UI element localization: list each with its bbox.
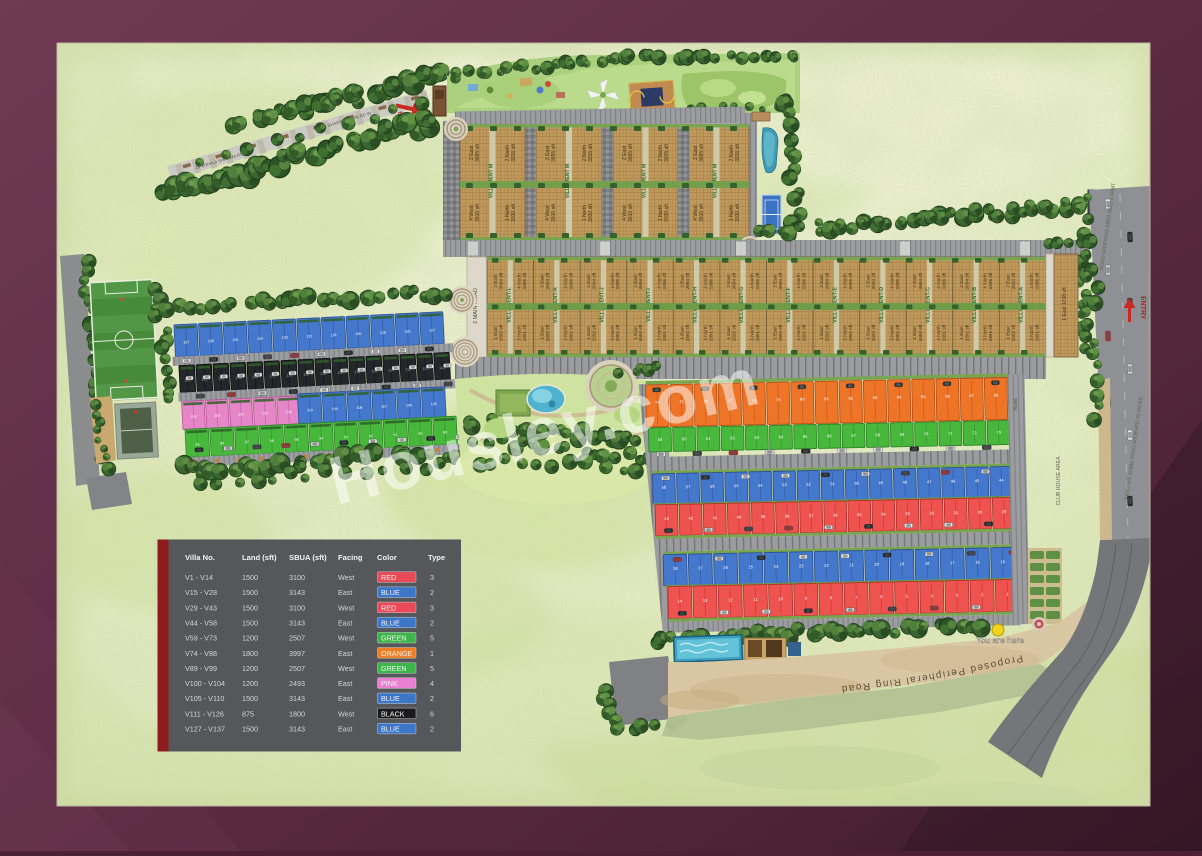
svg-text:V74 - V88: V74 - V88	[185, 649, 217, 658]
svg-text:3997: 3997	[289, 649, 305, 658]
svg-text:1200: 1200	[242, 664, 258, 673]
svg-text:3 North: 3 North	[563, 325, 568, 341]
svg-text:V111 - V126: V111 - V126	[185, 709, 224, 718]
svg-text:1500: 1500	[242, 588, 258, 597]
svg-text:3: 3	[430, 573, 434, 582]
svg-text:2 East: 2 East	[633, 274, 638, 288]
svg-text:1 East: 1 East	[633, 326, 638, 340]
svg-text:1592 sft: 1592 sft	[592, 324, 597, 341]
svg-text:2: 2	[430, 588, 434, 597]
svg-text:129: 129	[380, 331, 386, 335]
svg-text:1592 sft: 1592 sft	[1011, 324, 1016, 341]
svg-text:CLUB HOUSE AREA: CLUB HOUSE AREA	[1056, 456, 1062, 506]
svg-text:1 East: 1 East	[540, 326, 545, 340]
svg-text:Type: Type	[428, 553, 445, 562]
svg-text:4 North: 4 North	[703, 273, 708, 289]
svg-text:127: 127	[429, 328, 435, 332]
svg-text:1 East: 1 East	[819, 326, 824, 340]
svg-text:1991 sft: 1991 sft	[988, 324, 993, 341]
svg-text:130: 130	[355, 332, 361, 336]
svg-text:1991 sft: 1991 sft	[1035, 324, 1040, 341]
svg-text:Land (sft): Land (sft)	[242, 553, 277, 562]
svg-text:1996 sft: 1996 sft	[708, 272, 713, 289]
svg-text:West: West	[338, 709, 354, 718]
svg-text:3 North: 3 North	[889, 325, 894, 341]
svg-text:Road: Road	[1013, 398, 1019, 410]
svg-text:1 East: 1 East	[586, 326, 591, 340]
svg-text:109: 109	[332, 407, 338, 411]
svg-text:2 East: 2 East	[819, 274, 824, 288]
svg-text:1991 sft: 1991 sft	[755, 324, 760, 341]
svg-text:BLUE: BLUE	[381, 725, 400, 734]
svg-text:6: 6	[430, 709, 434, 718]
svg-text:4 North: 4 North	[936, 273, 941, 289]
svg-text:V44 - V58: V44 - V58	[185, 619, 217, 628]
svg-text:1592 sft: 1592 sft	[964, 324, 969, 341]
svg-text:96: 96	[270, 439, 274, 443]
svg-text:3030 sft: 3030 sft	[735, 203, 741, 221]
svg-text:1 East: 1 East	[1005, 326, 1010, 340]
svg-text:1996 sft: 1996 sft	[988, 272, 993, 289]
svg-text:1592 sft: 1592 sft	[545, 324, 550, 341]
svg-text:99: 99	[195, 443, 199, 447]
svg-text:2507: 2507	[289, 664, 305, 673]
svg-text:3143: 3143	[289, 588, 305, 597]
svg-text:132: 132	[306, 334, 312, 338]
svg-text:GREEN: GREEN	[381, 664, 407, 673]
svg-text:3 North: 3 North	[610, 325, 615, 341]
svg-text:97: 97	[245, 440, 249, 444]
svg-text:ORANGE: ORANGE	[381, 649, 412, 658]
svg-text:1996 sft: 1996 sft	[662, 272, 667, 289]
svg-text:2 East: 2 East	[586, 274, 591, 288]
svg-text:133: 133	[282, 335, 288, 339]
svg-text:1996 sft: 1996 sft	[1035, 272, 1040, 289]
svg-text:3 North: 3 North	[796, 325, 801, 341]
svg-text:1592 sft: 1592 sft	[731, 324, 736, 341]
svg-text:Facing: Facing	[338, 553, 363, 562]
svg-text:131: 131	[331, 333, 337, 337]
svg-text:East: East	[338, 588, 352, 597]
svg-text:2 East: 2 East	[726, 274, 731, 288]
svg-text:1996 sft: 1996 sft	[569, 272, 574, 289]
svg-text:West: West	[338, 573, 354, 582]
svg-text:4: 4	[430, 679, 434, 688]
svg-text:1592 sft: 1592 sft	[918, 324, 923, 341]
svg-text:136: 136	[208, 339, 214, 343]
svg-text:V59 - V73: V59 - V73	[185, 634, 217, 643]
svg-text:1996 sft: 1996 sft	[848, 272, 853, 289]
svg-text:East: East	[338, 679, 352, 688]
svg-text:102: 102	[238, 412, 244, 416]
svg-text:2694 sft: 2694 sft	[778, 272, 783, 289]
svg-text:BLUE: BLUE	[381, 694, 400, 703]
svg-text:108: 108	[356, 406, 362, 410]
svg-text:West: West	[338, 664, 354, 673]
svg-text:5: 5	[430, 634, 434, 643]
svg-text:3100: 3100	[289, 573, 305, 582]
svg-text:3143: 3143	[289, 694, 305, 703]
svg-text:1996 sft: 1996 sft	[522, 272, 527, 289]
svg-text:SBUA (sft): SBUA (sft)	[289, 553, 327, 562]
svg-text:1 East: 1 East	[912, 326, 917, 340]
svg-text:107: 107	[381, 404, 387, 408]
svg-text:2694 sft: 2694 sft	[499, 272, 504, 289]
svg-text:V15 - V28: V15 - V28	[185, 588, 217, 597]
svg-text:1500: 1500	[242, 725, 258, 734]
svg-text:4 North: 4 North	[982, 273, 987, 289]
svg-text:2694 sft: 2694 sft	[871, 272, 876, 289]
svg-text:2: 2	[430, 694, 434, 703]
svg-text:2: 2	[430, 725, 434, 734]
svg-text:1991 sft: 1991 sft	[708, 324, 713, 341]
svg-text:4 North: 4 North	[796, 273, 801, 289]
svg-text:3695 sft: 3695 sft	[551, 143, 557, 161]
svg-text:1 East: 1 East	[726, 326, 731, 340]
svg-text:1991 sft: 1991 sft	[615, 324, 620, 341]
svg-text:Villa No.: Villa No.	[185, 553, 215, 562]
svg-text:3015 sft: 3015 sft	[664, 143, 670, 161]
svg-text:You are here: You are here	[976, 635, 1025, 645]
svg-text:4 North: 4 North	[563, 273, 568, 289]
svg-text:2 East: 2 East	[679, 274, 684, 288]
svg-text:1800: 1800	[289, 709, 305, 718]
svg-text:2 East: 2 East	[773, 274, 778, 288]
svg-text:5: 5	[430, 664, 434, 673]
svg-text:98: 98	[220, 441, 224, 445]
svg-text:1996 sft: 1996 sft	[941, 272, 946, 289]
svg-text:1 East 1708 sft: 1 East 1708 sft	[1062, 287, 1068, 321]
svg-text:1991 sft: 1991 sft	[522, 324, 527, 341]
svg-text:3030 sft: 3030 sft	[588, 203, 594, 221]
svg-text:1592 sft: 1592 sft	[778, 324, 783, 341]
svg-text:3 North: 3 North	[750, 325, 755, 341]
svg-text:103: 103	[214, 413, 220, 417]
svg-text:1 East: 1 East	[679, 326, 684, 340]
svg-text:94: 94	[319, 436, 323, 440]
svg-text:3910 sft: 3910 sft	[628, 203, 634, 221]
svg-text:3910 sft: 3910 sft	[551, 203, 557, 221]
svg-text:RED: RED	[381, 603, 396, 612]
svg-text:2 East: 2 East	[540, 274, 545, 288]
svg-text:1991 sft: 1991 sft	[569, 324, 574, 341]
svg-text:2 East: 2 East	[493, 274, 498, 288]
svg-text:1592 sft: 1592 sft	[685, 324, 690, 341]
svg-text:1996 sft: 1996 sft	[615, 272, 620, 289]
svg-text:106: 106	[406, 403, 412, 407]
svg-text:4 North: 4 North	[610, 273, 615, 289]
svg-text:3015 sft: 3015 sft	[735, 143, 741, 161]
svg-text:1800: 1800	[242, 649, 258, 658]
svg-text:1500: 1500	[242, 603, 258, 612]
svg-text:ENTRY: ENTRY	[1139, 296, 1146, 320]
svg-text:1996 sft: 1996 sft	[895, 272, 900, 289]
svg-text:1: 1	[430, 649, 434, 658]
svg-text:1500: 1500	[242, 573, 258, 582]
svg-text:3910 sft: 3910 sft	[699, 203, 705, 221]
svg-text:3695 sft: 3695 sft	[628, 143, 634, 161]
svg-text:2694 sft: 2694 sft	[685, 272, 690, 289]
svg-text:1991 sft: 1991 sft	[802, 324, 807, 341]
svg-text:3 North: 3 North	[517, 325, 522, 341]
svg-text:95: 95	[294, 438, 298, 442]
svg-text:East: East	[338, 694, 352, 703]
svg-text:East: East	[338, 725, 352, 734]
svg-text:134: 134	[257, 337, 263, 341]
svg-text:100: 100	[286, 410, 292, 414]
svg-text:3030 sft: 3030 sft	[664, 203, 670, 221]
svg-text:4 North: 4 North	[750, 273, 755, 289]
svg-text:3143: 3143	[289, 619, 305, 628]
svg-text:4 North: 4 North	[843, 273, 848, 289]
svg-text:3143: 3143	[289, 725, 305, 734]
svg-text:West: West	[338, 603, 354, 612]
svg-text:2694 sft: 2694 sft	[918, 272, 923, 289]
svg-text:4 North: 4 North	[889, 273, 894, 289]
svg-text:East: East	[338, 619, 352, 628]
svg-text:V105 - V110: V105 - V110	[185, 694, 224, 703]
svg-text:2 East: 2 East	[959, 274, 964, 288]
svg-text:3910 sft: 3910 sft	[475, 203, 481, 221]
svg-text:3 North: 3 North	[703, 325, 708, 341]
svg-text:3695 sft: 3695 sft	[699, 143, 705, 161]
svg-text:3015 sft: 3015 sft	[511, 143, 517, 161]
svg-text:104: 104	[191, 415, 197, 419]
svg-text:V127 - V137: V127 - V137	[185, 725, 225, 734]
svg-text:1592 sft: 1592 sft	[871, 324, 876, 341]
svg-text:West: West	[338, 634, 354, 643]
svg-text:1592 sft: 1592 sft	[499, 324, 504, 341]
svg-text:1991 sft: 1991 sft	[895, 324, 900, 341]
svg-text:2694 sft: 2694 sft	[592, 272, 597, 289]
svg-text:2 East: 2 East	[912, 274, 917, 288]
svg-text:East: East	[338, 649, 352, 658]
svg-text:2507: 2507	[289, 634, 305, 643]
svg-text:2694 sft: 2694 sft	[545, 272, 550, 289]
svg-text:V100 - V104: V100 - V104	[185, 679, 225, 688]
svg-text:BLACK: BLACK	[381, 709, 405, 718]
svg-text:3: 3	[430, 603, 434, 612]
svg-text:101: 101	[262, 411, 268, 415]
svg-text:1500: 1500	[242, 694, 258, 703]
svg-text:105: 105	[431, 402, 437, 406]
svg-text:3 North: 3 North	[1029, 325, 1034, 341]
svg-text:2493: 2493	[289, 679, 305, 688]
svg-text:1200: 1200	[242, 634, 258, 643]
svg-text:3030 sft: 3030 sft	[511, 203, 517, 221]
svg-text:128: 128	[404, 329, 410, 333]
svg-text:3 North: 3 North	[936, 325, 941, 341]
svg-text:1996 sft: 1996 sft	[755, 272, 760, 289]
svg-text:2694 sft: 2694 sft	[638, 272, 643, 289]
svg-text:BLUE: BLUE	[381, 619, 400, 628]
svg-text:Color: Color	[377, 553, 397, 562]
svg-text:2: 2	[430, 619, 434, 628]
svg-text:3 North: 3 North	[656, 325, 661, 341]
svg-text:2694 sft: 2694 sft	[731, 272, 736, 289]
svg-text:1991 sft: 1991 sft	[662, 324, 667, 341]
svg-text:1991 sft: 1991 sft	[941, 324, 946, 341]
svg-text:875: 875	[242, 709, 254, 718]
svg-text:PINK: PINK	[381, 679, 398, 688]
svg-text:2694 sft: 2694 sft	[1011, 272, 1016, 289]
svg-text:1 East: 1 East	[773, 326, 778, 340]
svg-text:1996 sft: 1996 sft	[802, 272, 807, 289]
svg-text:1 East: 1 East	[959, 326, 964, 340]
svg-text:1 East: 1 East	[866, 326, 871, 340]
svg-text:2 East: 2 East	[1005, 274, 1010, 288]
svg-text:135: 135	[232, 338, 238, 342]
svg-text:3695 sft: 3695 sft	[475, 143, 481, 161]
svg-text:GREEN: GREEN	[381, 634, 407, 643]
svg-text:137: 137	[183, 340, 189, 344]
svg-text:4 North: 4 North	[656, 273, 661, 289]
svg-text:V29 - V43: V29 - V43	[185, 603, 217, 612]
svg-text:3100: 3100	[289, 603, 305, 612]
svg-text:1500: 1500	[242, 619, 258, 628]
svg-text:3 North: 3 North	[843, 325, 848, 341]
svg-text:2 East: 2 East	[866, 274, 871, 288]
svg-text:3 North: 3 North	[982, 325, 987, 341]
svg-text:1592 sft: 1592 sft	[638, 324, 643, 341]
svg-text:1991 sft: 1991 sft	[848, 324, 853, 341]
svg-text:1592 sft: 1592 sft	[825, 324, 830, 341]
svg-text:1 East: 1 East	[493, 326, 498, 340]
svg-text:V89 - V99: V89 - V99	[185, 664, 217, 673]
svg-text:4 North: 4 North	[517, 273, 522, 289]
svg-text:V1 - V14: V1 - V14	[185, 573, 213, 582]
svg-text:BLUE: BLUE	[381, 588, 400, 597]
svg-text:2694 sft: 2694 sft	[964, 272, 969, 289]
svg-text:2694 sft: 2694 sft	[825, 272, 830, 289]
svg-text:4 North: 4 North	[1029, 273, 1034, 289]
svg-text:1200: 1200	[242, 679, 258, 688]
svg-text:110: 110	[307, 408, 313, 412]
svg-text:3015 sft: 3015 sft	[588, 143, 594, 161]
svg-text:RED: RED	[381, 573, 396, 582]
